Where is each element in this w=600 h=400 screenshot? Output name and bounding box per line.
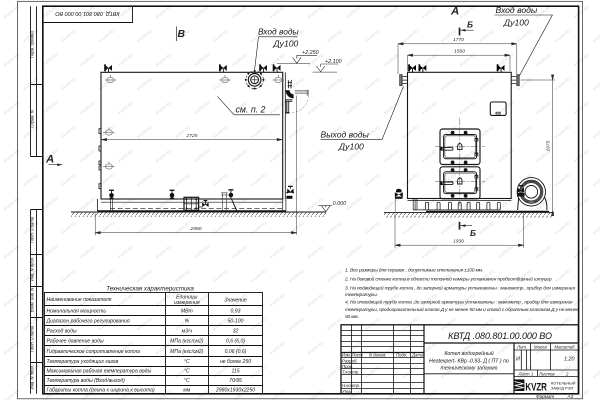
svg-text:Рабочее давление воды: Рабочее давление воды <box>47 338 104 344</box>
svg-text:не более 250: не более 250 <box>220 359 251 365</box>
svg-text:Вход воды: Вход воды <box>258 27 299 37</box>
svg-text:2980х1930х2250: 2980х1930х2250 <box>215 387 255 393</box>
svg-text:Т.контр.: Т.контр. <box>342 369 359 374</box>
svg-text:Н.контр.: Н.контр. <box>342 383 360 388</box>
svg-text:0,6 (6,0): 0,6 (6,0) <box>226 338 245 344</box>
svg-text:4. На отводящей трубе котла ,: 4. На отводящей трубе котла ,до запорной… <box>345 299 573 306</box>
svg-text:И: И <box>516 356 520 362</box>
svg-text:Вход воды: Вход воды <box>496 5 538 15</box>
svg-text:температуры.: температуры. <box>345 293 378 298</box>
svg-text:°С: °С <box>184 378 190 384</box>
svg-text:Наименование показателя: Наименование показателя <box>47 297 112 303</box>
svg-text:Перв. примен.: Перв. примен. <box>30 30 35 58</box>
svg-text:1770: 1770 <box>453 37 464 43</box>
svg-text:Изм.: Изм. <box>342 353 351 358</box>
svg-text:Масса: Масса <box>534 344 547 349</box>
svg-text:Номинальная мощность: Номинальная мощность <box>47 308 107 314</box>
svg-text:Котел водогрейный: Котел водогрейный <box>444 350 493 357</box>
svg-text:Лист: Лист <box>518 371 530 376</box>
svg-text:техническому заданию: техническому заданию <box>441 366 498 372</box>
svg-text:32: 32 <box>233 328 239 334</box>
svg-text:МПа (кгс/см2): МПа (кгс/см2) <box>170 349 204 355</box>
svg-text:А: А <box>450 6 459 18</box>
svg-text:Диапазон рабочего регулировани: Диапазон рабочего регулирования <box>46 318 130 324</box>
svg-text:ЗАВОД РЭП: ЗАВОД РЭП <box>551 386 573 391</box>
svg-text:МПа (кгс/см2): МПа (кгс/см2) <box>170 338 204 344</box>
svg-text:Техническая характеристика: Техническая характеристика <box>106 285 194 292</box>
svg-text:Лит.: Лит. <box>516 344 527 349</box>
svg-text:Пров.: Пров. <box>342 364 353 369</box>
svg-text:Лист: Лист <box>351 353 363 358</box>
svg-text:Подп.: Подп. <box>396 353 407 358</box>
svg-text:Температура уходящих газов: Температура уходящих газов <box>47 359 119 365</box>
svg-text:+2.250: +2.250 <box>302 50 319 56</box>
svg-text:мм: мм <box>183 387 190 393</box>
svg-text:А: А <box>45 153 54 165</box>
svg-text:Габариты котла (длина х ширина: Габариты котла (длина х ширина х высота) <box>47 387 155 393</box>
svg-text:70/95: 70/95 <box>229 378 242 384</box>
svg-text:Максимальная рабочая температу: Максимальная рабочая температура воды <box>47 368 152 374</box>
svg-text:Гидравлическое сопротивление к: Гидравлическое сопротивление котла <box>47 349 141 355</box>
svg-text:А3: А3 <box>567 394 574 399</box>
svg-text:Ду100: Ду100 <box>338 142 364 152</box>
svg-text:Ду100: Ду100 <box>273 39 299 49</box>
svg-text:Б: Б <box>470 228 476 238</box>
svg-text:Температура воды (Вход/выход): Температура воды (Вход/выход) <box>47 378 126 384</box>
svg-text:температуры, предохранительный: температуры, предохранительный клапан Д … <box>345 306 579 313</box>
svg-text:Утв.: Утв. <box>342 389 352 394</box>
svg-text:1975: 1975 <box>546 140 552 151</box>
svg-text:2725: 2725 <box>186 133 198 139</box>
svg-text:Разраб.: Разраб. <box>342 358 358 363</box>
svg-text:В: В <box>178 29 186 40</box>
svg-text:0.000: 0.000 <box>333 201 347 207</box>
svg-text:Инв. N дубл.: Инв. N дубл. <box>30 257 35 281</box>
svg-text:КВТД .080.801.00.000 ВО: КВТД .080.801.00.000 ВО <box>448 331 552 341</box>
svg-text:Дата: Дата <box>411 353 424 358</box>
svg-text:Б: Б <box>467 19 473 29</box>
svg-text:Масштаб: Масштаб <box>555 344 576 349</box>
svg-text:Подп. и дата: Подп. и дата <box>30 325 35 352</box>
svg-text:Неаtехреrt- КВр -0,93- Д ( ПТ: Неаtехреrt- КВр -0,93- Д ( ПТ ) по <box>429 359 509 365</box>
svg-text:Инв. N подл.: Инв. N подл. <box>30 365 35 389</box>
svg-text:°С: °С <box>184 368 190 374</box>
svg-text:Листов: Листов <box>538 371 555 376</box>
svg-text:0,06 (0,6): 0,06 (0,6) <box>225 349 247 355</box>
svg-text:°С: °С <box>184 359 190 365</box>
svg-text:Взам. инв. N: Взам. инв. N <box>30 287 35 312</box>
svg-text:КВТД .080.801.00.000 ВО: КВТД .080.801.00.000 ВО <box>55 10 120 16</box>
svg-text:3. На подводящей трубе котла: 3. На подводящей трубе котла , до запорн… <box>345 285 575 292</box>
svg-text:2. На боковой стенке котла в: 2. На боковой стенке котла в области топ… <box>344 276 552 283</box>
svg-text:KVZR: KVZR <box>525 381 547 393</box>
svg-text:м3/ч: м3/ч <box>182 328 193 334</box>
svg-text:Справ. N: Справ. N <box>30 109 35 127</box>
svg-text:2980: 2980 <box>190 226 202 232</box>
svg-text:МВт: МВт <box>181 308 193 314</box>
svg-text:Формат: Формат <box>536 394 554 399</box>
svg-text:115: 115 <box>231 368 239 374</box>
svg-text:1560: 1560 <box>454 49 465 55</box>
svg-text:Ду100: Ду100 <box>503 17 529 27</box>
svg-text:см. п. 2: см. п. 2 <box>236 105 266 115</box>
svg-text:Выход воды: Выход воды <box>321 129 370 139</box>
svg-text:Расход воды: Расход воды <box>47 328 77 334</box>
svg-text:0,93: 0,93 <box>231 308 241 314</box>
svg-text:1. Все размеры для справок ,: 1. Все размеры для справок , допустимые … <box>345 268 483 274</box>
svg-text:%: % <box>185 318 190 324</box>
svg-text:1:20: 1:20 <box>564 356 575 362</box>
svg-text:N докум.: N докум. <box>369 353 386 358</box>
svg-text:50 мм.: 50 мм. <box>345 314 359 320</box>
svg-text:1930: 1930 <box>453 239 464 245</box>
svg-text:50-100: 50-100 <box>228 318 244 324</box>
svg-text:Подп. и дата: Подп. и дата <box>30 216 35 243</box>
svg-text:Значение: Значение <box>224 297 247 303</box>
svg-text:+2.100: +2.100 <box>325 59 342 65</box>
svg-text:измерения: измерения <box>174 300 200 306</box>
